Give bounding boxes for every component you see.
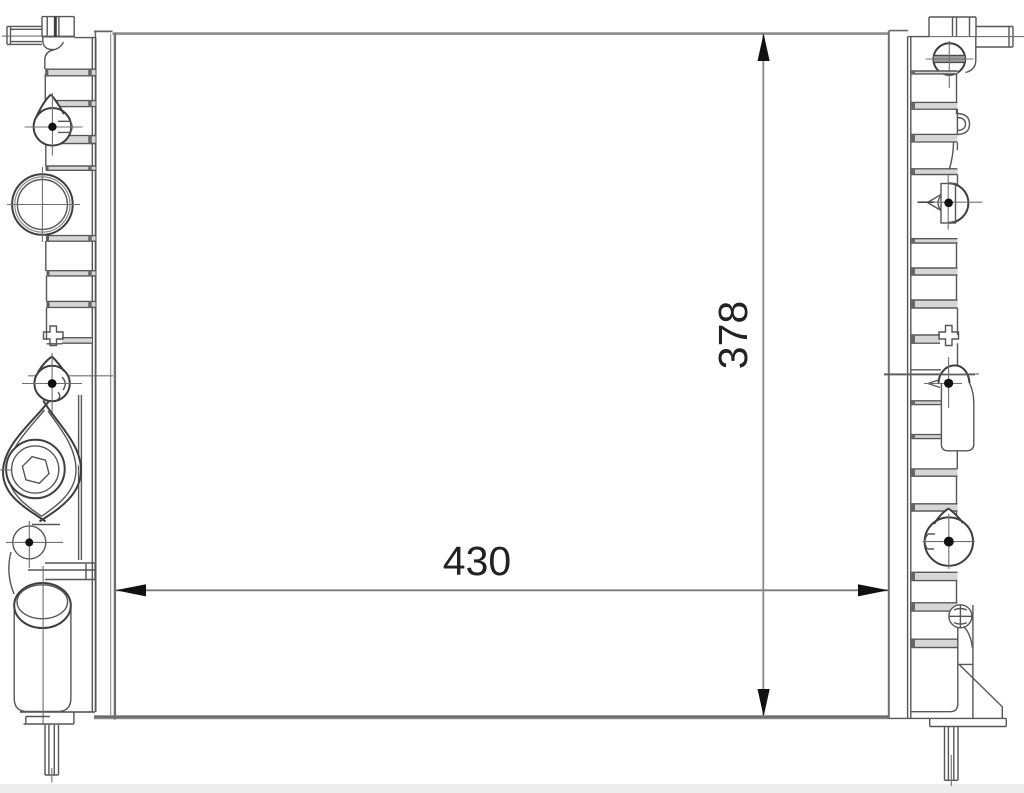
svg-text:430: 430 bbox=[443, 538, 511, 584]
svg-text:378: 378 bbox=[710, 301, 756, 369]
